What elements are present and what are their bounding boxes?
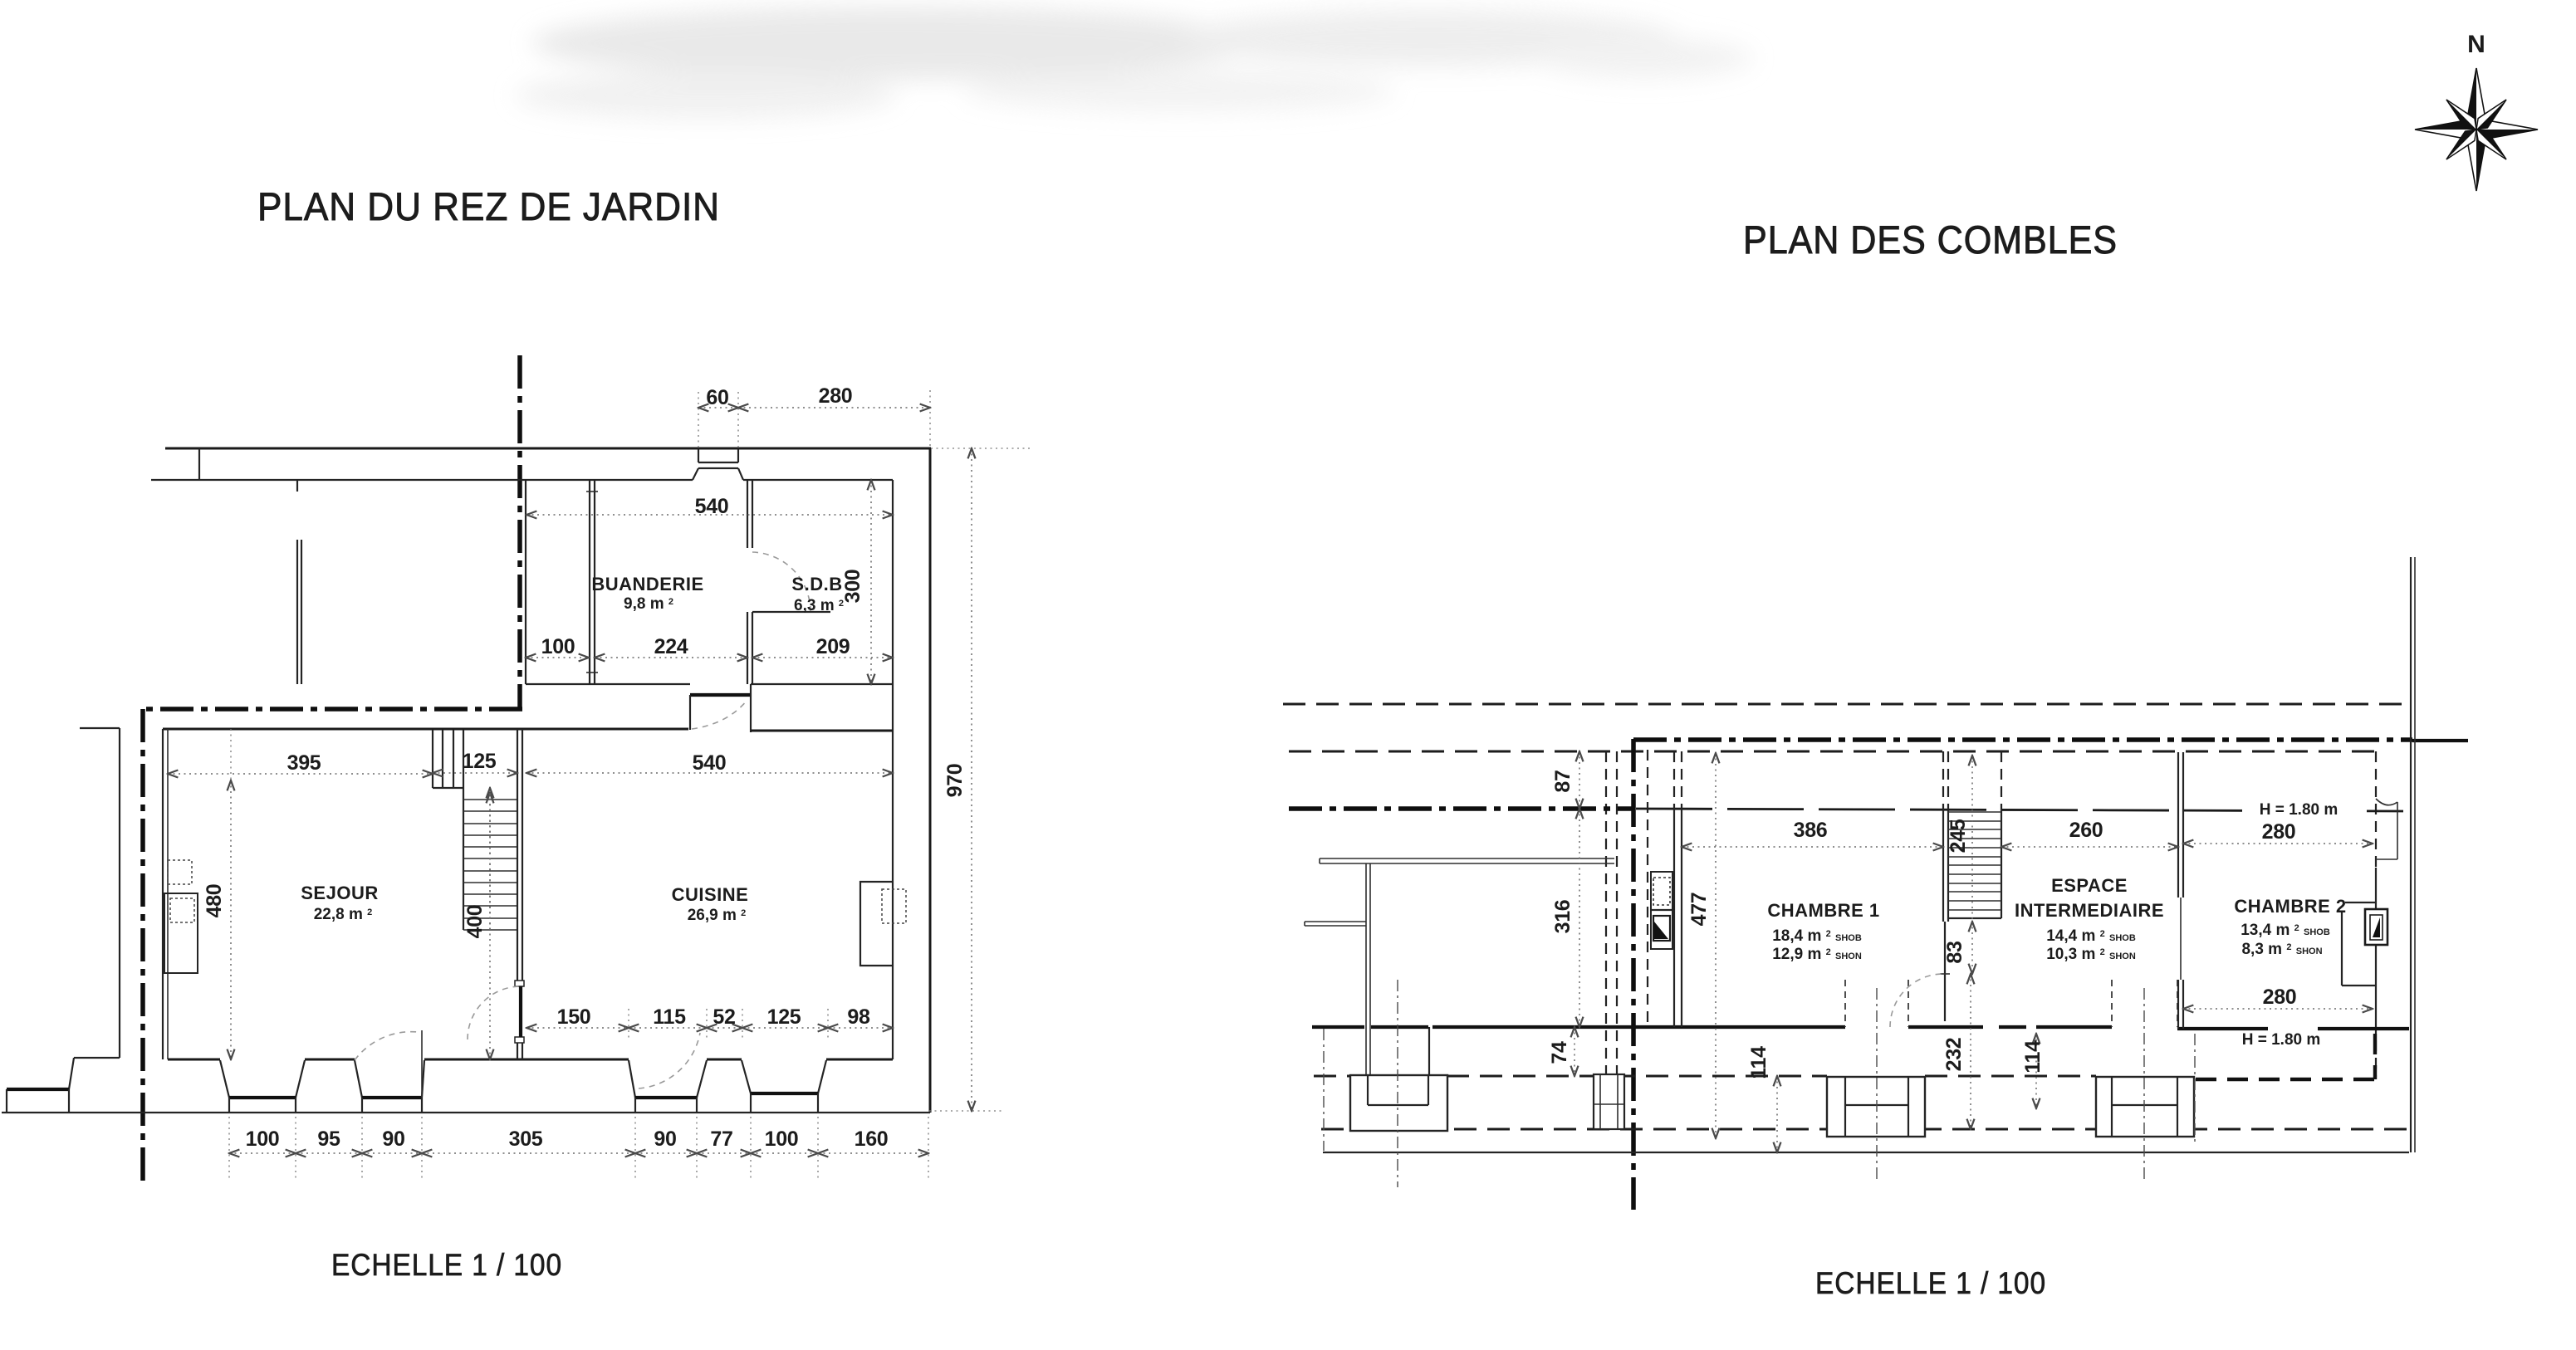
- svg-text:9,8 m 2: 9,8 m 2: [624, 595, 673, 613]
- svg-text:CHAMBRE 1: CHAMBRE 1: [1767, 900, 1879, 921]
- svg-text:6,3 m 2: 6,3 m 2: [794, 597, 844, 614]
- svg-text:52: 52: [713, 1005, 735, 1029]
- svg-text:150: 150: [557, 1005, 591, 1029]
- svg-text:280: 280: [2263, 986, 2297, 1009]
- svg-text:480: 480: [203, 884, 226, 918]
- svg-text:540: 540: [693, 751, 727, 775]
- svg-text:22,8 m 2: 22,8 m 2: [314, 906, 373, 923]
- svg-text:SEJOUR: SEJOUR: [301, 883, 378, 903]
- svg-text:395: 395: [287, 751, 321, 775]
- svg-text:245: 245: [1947, 819, 1970, 853]
- svg-text:114: 114: [2021, 1040, 2045, 1074]
- svg-text:CHAMBRE 2: CHAMBRE 2: [2234, 896, 2346, 917]
- svg-text:114: 114: [1747, 1046, 1770, 1079]
- svg-text:970: 970: [943, 764, 967, 798]
- svg-text:160: 160: [855, 1127, 889, 1151]
- svg-text:300: 300: [841, 570, 864, 604]
- svg-text:N: N: [2467, 31, 2485, 58]
- svg-text:100: 100: [765, 1127, 799, 1151]
- svg-text:280: 280: [2262, 820, 2296, 844]
- svg-text:125: 125: [463, 750, 497, 773]
- svg-text:386: 386: [1794, 819, 1828, 842]
- svg-text:316: 316: [1551, 900, 1574, 934]
- svg-text:INTERMEDIAIRE: INTERMEDIAIRE: [2015, 900, 2164, 921]
- svg-text:280: 280: [819, 384, 853, 408]
- svg-text:ECHELLE 1 / 100: ECHELLE 1 / 100: [1815, 1266, 2046, 1300]
- svg-text:95: 95: [317, 1127, 340, 1151]
- svg-text:ESPACE: ESPACE: [2051, 875, 2128, 896]
- svg-text:H = 1.80 m: H = 1.80 m: [2260, 801, 2338, 819]
- svg-text:PLAN DES COMBLES: PLAN DES COMBLES: [1743, 218, 2118, 262]
- svg-text:PLAN DU REZ DE JARDIN: PLAN DU REZ DE JARDIN: [257, 184, 720, 228]
- svg-text:100: 100: [246, 1127, 280, 1151]
- svg-text:90: 90: [382, 1127, 404, 1151]
- svg-text:26,9 m 2: 26,9 m 2: [688, 907, 747, 924]
- svg-text:87: 87: [1551, 770, 1574, 792]
- svg-text:115: 115: [653, 1005, 686, 1029]
- svg-text:CUISINE: CUISINE: [672, 884, 749, 905]
- svg-text:BUANDERIE: BUANDERIE: [591, 574, 703, 594]
- svg-text:77: 77: [710, 1127, 732, 1151]
- svg-text:H = 1.80 m: H = 1.80 m: [2242, 1031, 2321, 1049]
- svg-text:260: 260: [2069, 819, 2103, 842]
- svg-text:400: 400: [463, 905, 487, 939]
- svg-text:90: 90: [654, 1127, 676, 1151]
- svg-text:98: 98: [847, 1005, 870, 1029]
- svg-text:125: 125: [767, 1005, 801, 1029]
- svg-text:224: 224: [654, 635, 688, 658]
- svg-text:305: 305: [509, 1127, 543, 1151]
- svg-text:232: 232: [1942, 1038, 1966, 1072]
- svg-text:74: 74: [1548, 1041, 1571, 1064]
- svg-text:S.D.B: S.D.B: [791, 574, 842, 594]
- svg-text:ECHELLE 1 / 100: ECHELLE 1 / 100: [331, 1248, 562, 1282]
- svg-text:83: 83: [1943, 941, 1966, 963]
- svg-text:100: 100: [541, 635, 575, 658]
- svg-text:477: 477: [1687, 893, 1711, 927]
- svg-text:60: 60: [706, 386, 728, 409]
- svg-text:209: 209: [816, 635, 850, 658]
- svg-text:540: 540: [695, 495, 729, 518]
